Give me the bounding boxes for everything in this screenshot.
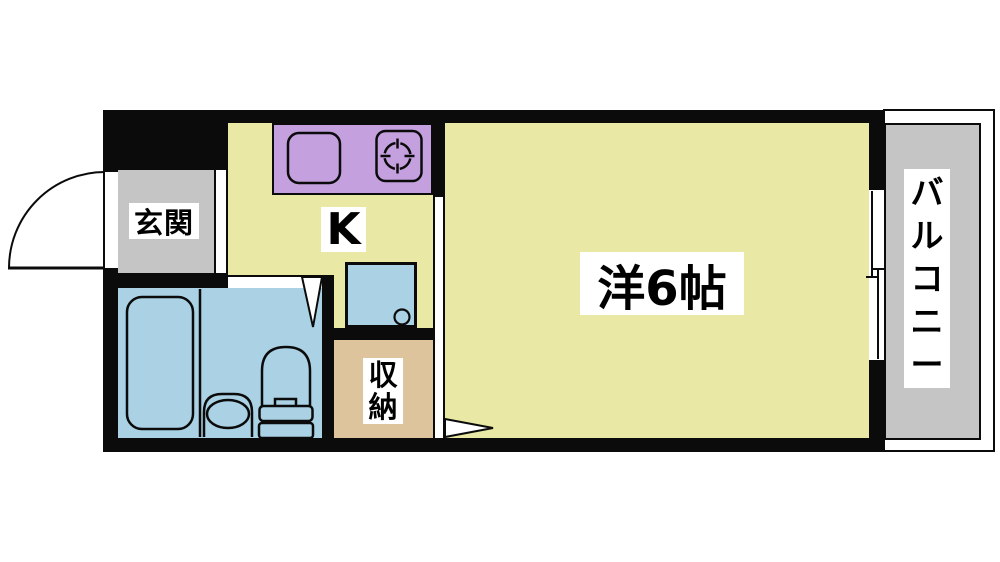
entrance-label: 玄関 — [129, 203, 199, 239]
storage-label: 収 納 — [363, 358, 403, 424]
balcony-label: バ ル コ ニ ー — [904, 169, 950, 388]
kitchen-counter — [272, 123, 433, 195]
balcony-label-char: ル — [911, 214, 944, 257]
wall-kitchen-right-upper — [433, 123, 445, 197]
wall-top-left-block — [103, 110, 228, 170]
balcony-window-opening — [869, 190, 884, 360]
kitchen-divider-strip — [433, 197, 445, 438]
balcony-label-char: コ — [911, 257, 944, 300]
balcony-label-char: バ — [911, 171, 944, 214]
balcony-label-char: ニ — [911, 300, 944, 343]
wall-top — [227, 110, 883, 123]
entrance-step-strip — [214, 170, 228, 273]
wall-bathroom-right — [322, 275, 334, 452]
floor-plan: 玄関 K 洋6帖 収 納 バ ル コ ニ ー — [0, 0, 1000, 562]
storage-label-char: 納 — [368, 391, 397, 423]
balcony-label-char: ー — [911, 343, 944, 386]
main-room-label: 洋6帖 — [580, 252, 744, 315]
kitchen-label: K — [321, 207, 366, 252]
wall-entrance-bottom — [103, 273, 228, 288]
bathroom-doorway — [228, 275, 322, 288]
entrance-door-arc — [9, 172, 105, 268]
washing-machine-pan — [345, 262, 417, 328]
storage-label-char: 収 — [368, 359, 397, 391]
wall-bottom — [103, 438, 883, 452]
entrance-door-opening — [105, 172, 118, 268]
bathroom-floor — [118, 288, 322, 438]
wall-storage-top — [330, 328, 445, 340]
